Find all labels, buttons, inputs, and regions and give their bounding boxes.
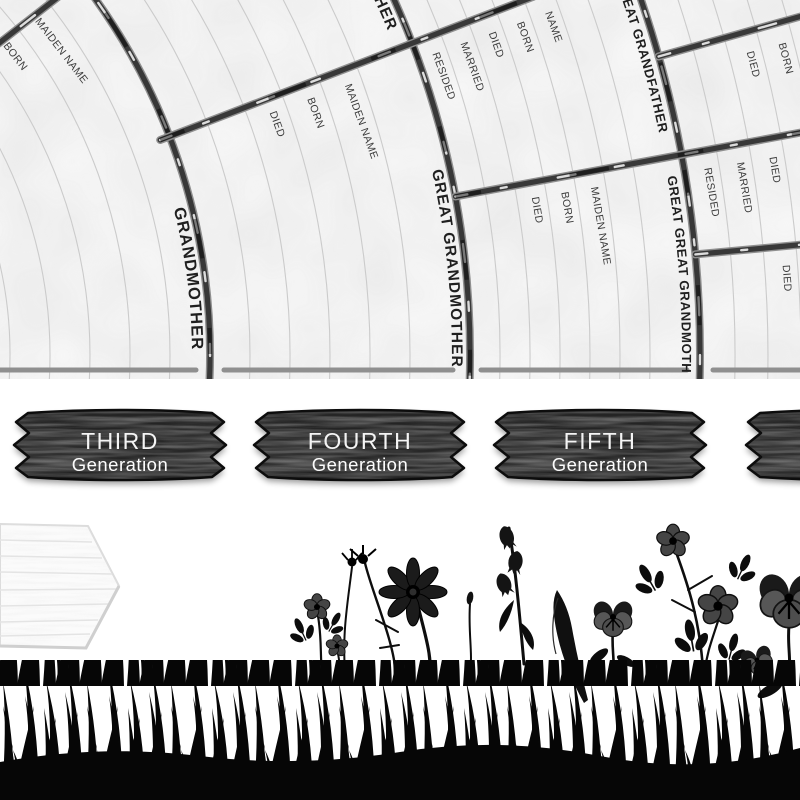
- plaque-fourth-generation: FOURTH Generation: [246, 402, 474, 488]
- plaque-sixth-generation: SIXTH Generation: [738, 402, 800, 488]
- rose-spray-left-icon: [283, 549, 362, 676]
- fan-chart: GRANDMOTHER GREAT GRANDMOTHER GREAT GRAN…: [0, 0, 800, 466]
- generation-word: Generation: [552, 454, 649, 475]
- rose-spray-right-icon: [625, 524, 764, 670]
- fan-chart-poster: GRANDMOTHER GREAT GRANDMOTHER GREAT GRAN…: [0, 0, 800, 800]
- bellflower-icon: [494, 524, 534, 664]
- generation-word: Generation: [312, 454, 409, 475]
- generation-ordinal: FOURTH: [308, 428, 412, 454]
- grass-silhouette: [0, 660, 800, 800]
- generation-ordinal: THIRD: [81, 428, 159, 454]
- generation-ordinal: FIFTH: [564, 428, 637, 454]
- generation-word: Generation: [72, 454, 169, 475]
- plaque-third-generation: THIRD Generation: [6, 402, 234, 488]
- plaque-fifth-generation: FIFTH Generation: [486, 402, 714, 488]
- generation-plaques: THIRD Generation FOURTH Generation: [6, 402, 800, 488]
- field-label-died: DIED: [780, 264, 794, 292]
- wooden-arrow-sign: [0, 520, 126, 652]
